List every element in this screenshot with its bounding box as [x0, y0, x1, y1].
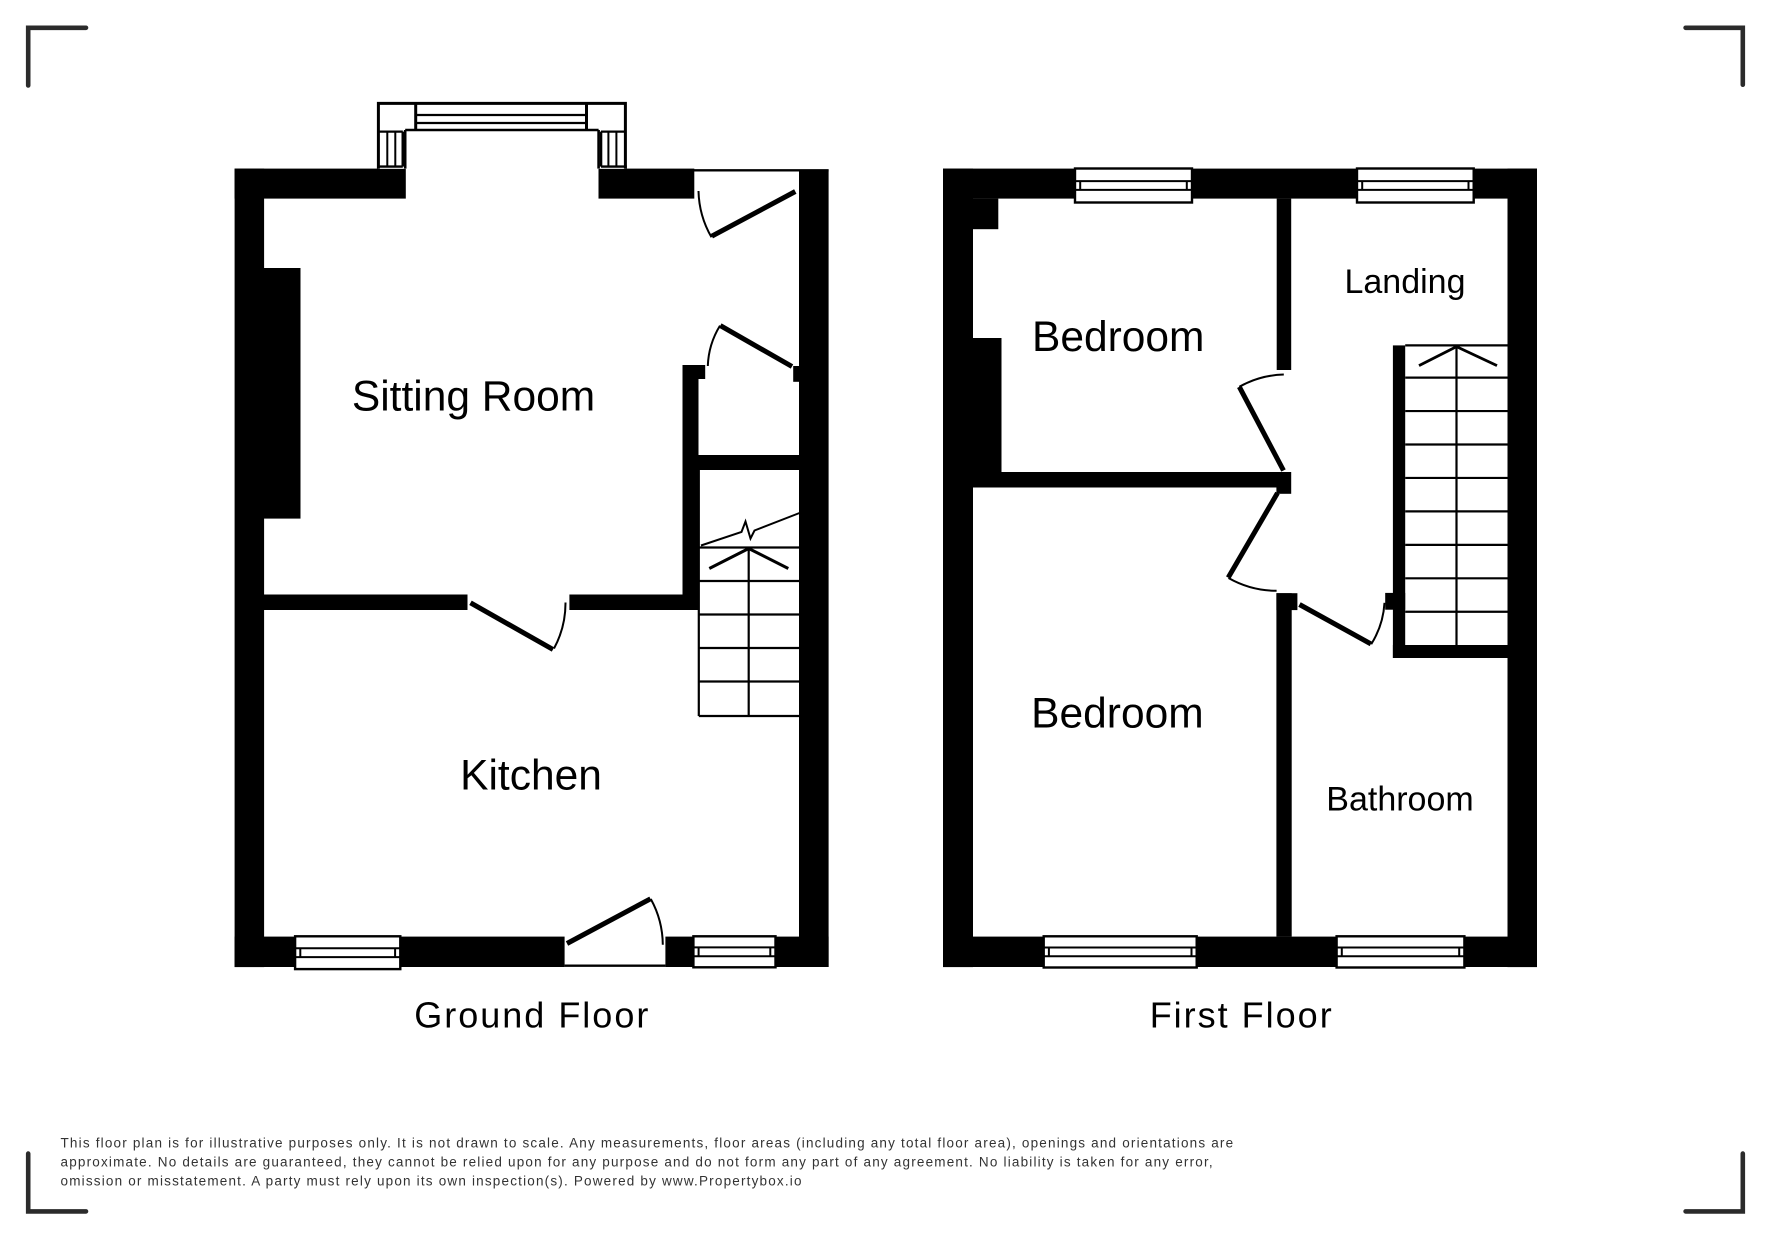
svg-text:omission or misstatement. A pa: omission or misstatement. A party must r… — [61, 1174, 803, 1189]
svg-text:First Floor: First Floor — [1150, 994, 1334, 1035]
svg-text:Bathroom: Bathroom — [1326, 780, 1473, 818]
svg-text:Bedroom: Bedroom — [1032, 314, 1204, 361]
svg-text:Kitchen: Kitchen — [460, 753, 602, 800]
svg-text:This floor plan is for illustr: This floor plan is for illustrative purp… — [61, 1136, 1235, 1151]
svg-text:Landing: Landing — [1344, 263, 1465, 301]
svg-text:Ground Floor: Ground Floor — [414, 995, 650, 1036]
svg-text:Bedroom: Bedroom — [1031, 691, 1203, 738]
svg-text:Sitting Room: Sitting Room — [352, 374, 595, 421]
svg-text:approximate. No details are gu: approximate. No details are guaranteed, … — [61, 1155, 1214, 1170]
